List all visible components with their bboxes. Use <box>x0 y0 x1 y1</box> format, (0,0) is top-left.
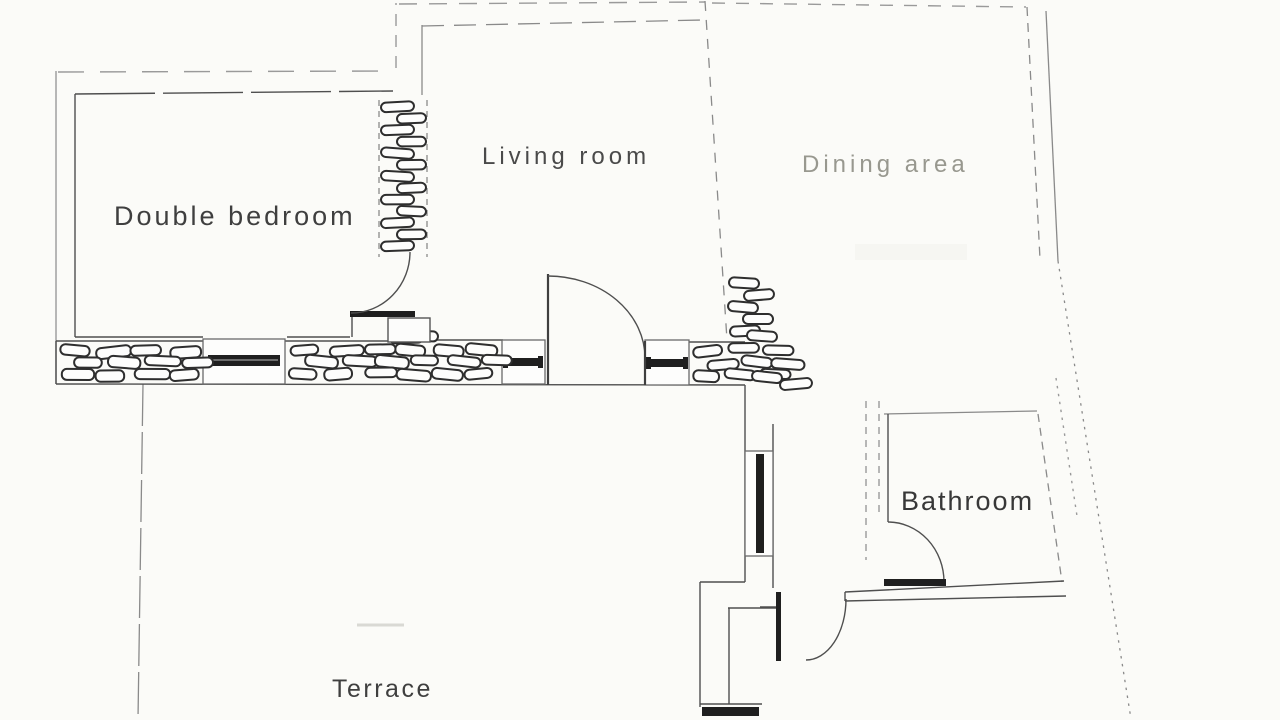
stone-icon <box>365 344 396 354</box>
windows <box>203 339 773 716</box>
stone-icon <box>381 171 415 182</box>
stone-icon <box>397 113 426 124</box>
stone-icon <box>447 355 481 368</box>
bedroom-door-icon <box>350 252 430 342</box>
stone-icon <box>693 344 723 358</box>
stone-icon <box>771 358 805 370</box>
stone-icon <box>135 369 171 380</box>
stone-icon <box>411 355 438 365</box>
stone-icon <box>431 367 463 381</box>
stone-icon <box>365 368 397 378</box>
room-label-bathroom: Bathroom <box>901 486 1034 517</box>
stone-icon <box>74 357 102 368</box>
floorplan-drawing <box>0 0 1280 720</box>
room-label-double-bedroom: Double bedroom <box>114 201 356 232</box>
stone-icon <box>96 370 125 382</box>
doors <box>350 252 946 707</box>
room-label-living-room: Living room <box>482 143 650 171</box>
stone-icon <box>396 369 431 382</box>
stone-icon <box>381 101 414 112</box>
stone-icon <box>397 183 426 194</box>
floor-plan: Double bedroom Living room Dining area B… <box>0 0 1280 720</box>
stone-icon <box>728 301 759 314</box>
stone-icon <box>729 277 760 289</box>
stone-icon <box>724 368 756 381</box>
stone-icon <box>381 147 415 159</box>
stone-hatch-layer <box>60 101 812 390</box>
window-icon <box>745 451 773 556</box>
stone-icon <box>60 344 90 357</box>
room-label-terrace: Terrace <box>332 675 433 704</box>
stone-icon <box>343 355 378 367</box>
stone-icon <box>182 357 213 368</box>
window-icon <box>645 340 689 385</box>
stone-icon <box>381 241 414 252</box>
stone-icon <box>741 355 773 369</box>
stone-icon <box>752 370 783 383</box>
terrace-exit-threshold <box>700 704 762 716</box>
stone-icon <box>747 330 778 342</box>
stone-icon <box>464 367 493 380</box>
stone-icon <box>397 206 426 217</box>
stone-icon <box>397 137 426 147</box>
stone-icon <box>169 369 199 382</box>
stone-icon <box>62 369 94 380</box>
room-label-dining-area: Dining area <box>802 151 969 179</box>
stone-icon <box>763 345 794 355</box>
stone-icon <box>305 354 339 369</box>
stone-icon <box>482 355 512 366</box>
stone-icon <box>744 289 775 301</box>
stone-icon <box>130 345 161 356</box>
stone-icon <box>108 355 141 369</box>
corridor-exit-door-icon <box>700 582 846 707</box>
stone-icon <box>381 217 414 228</box>
stone-icon <box>145 355 182 366</box>
window-icon <box>203 339 285 384</box>
stone-icon <box>381 195 414 205</box>
stone-icon <box>693 370 719 382</box>
stone-icon <box>743 314 773 324</box>
stone-icon <box>397 160 426 170</box>
stone-icon <box>780 378 813 391</box>
stone-icon <box>381 125 414 136</box>
living-room-door-icon <box>548 274 645 385</box>
stone-icon <box>289 368 317 380</box>
stone-icon <box>397 229 426 239</box>
stone-icon <box>324 367 353 380</box>
stone-icon <box>728 343 759 353</box>
